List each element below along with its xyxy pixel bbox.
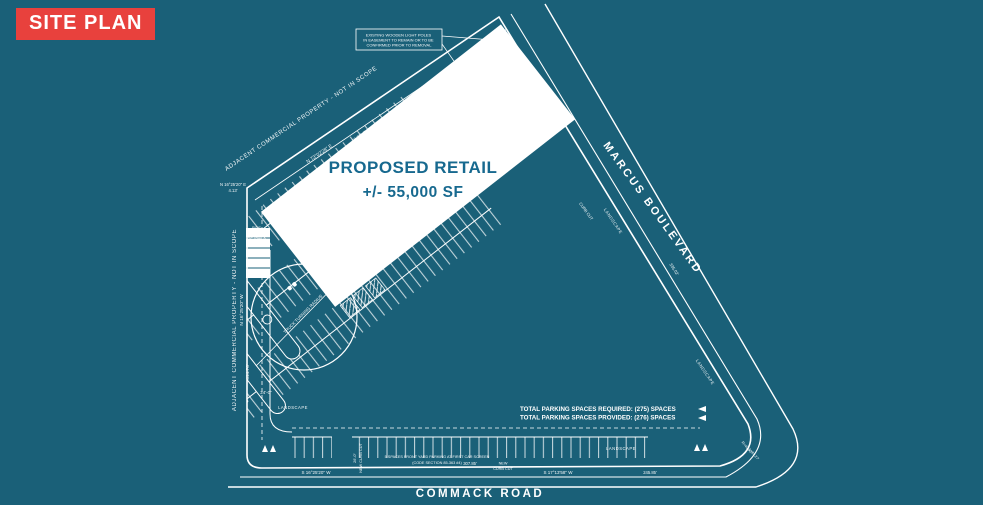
curb-cut-label: CURB CUT — [578, 201, 595, 221]
flow-arrow-icon — [698, 415, 706, 421]
bearing-bottom-east: S 17°13'58" W — [543, 470, 573, 475]
front-yard-note-line2: (CODE SECTION 85-363 #4) — [412, 461, 462, 465]
building-label-line2: +/- 55,000 SF — [363, 184, 464, 201]
flow-arrow-icon — [698, 406, 706, 412]
landscape-label: LANDSCAPE — [695, 358, 716, 386]
curb-cut-width: 26'-0" — [353, 453, 357, 463]
bottom-east-length: 245.85' — [643, 470, 657, 475]
marcus-length: 335.02' — [668, 262, 680, 276]
new-curb-cut-label: NEW — [499, 462, 508, 466]
bearing-jog: N 16°25'20" E — [220, 182, 246, 187]
adjacent-property-label-left: ADJACENT COMMERCIAL PROPERTY - NOT IN SC… — [232, 229, 238, 411]
landscape-label: LANDSCAPE — [603, 207, 624, 235]
light-pole-note: EXISTING WOODEN LIGHT POLES IN EASEMENT … — [363, 33, 434, 48]
left-length: 414.78' — [245, 364, 251, 380]
new-curb-cut-label-vertical: NEW CURB CUT — [359, 443, 363, 473]
crosswalk-hatch — [153, 247, 182, 277]
front-yard-note-line1: 5 SPACES FRONT YARD PARKING AT FIRST CAR… — [385, 455, 490, 459]
parking-required: TOTAL PARKING SPACES REQUIRED: (275) SPA… — [520, 406, 676, 413]
landscape-label: LANDSCAPE — [606, 446, 636, 451]
tree-icon — [262, 445, 276, 452]
setback-dimension: 24'-0" — [260, 390, 272, 395]
commack-road-label: COMMACK ROAD — [416, 488, 544, 500]
corner-arc-length: L=63.27' — [748, 448, 760, 461]
tree-icon — [694, 444, 708, 451]
landscape-label: LANDSCAPE — [278, 405, 308, 410]
site-plan-drawing: PROPOSED RETAIL +/- 55,000 SF MARCUS BOU… — [0, 0, 983, 505]
bearing-bottom-west: S 16°25'20" W — [301, 470, 331, 475]
crosswalk-hatch — [192, 296, 219, 325]
bottom-west-length: 307.85' — [463, 461, 477, 466]
new-curb-cut-label: CURB CUT — [493, 467, 513, 471]
building-label-line1: PROPOSED RETAIL — [329, 158, 498, 177]
parking-provided: TOTAL PARKING SPACES PROVIDED: (276) SPA… — [520, 415, 675, 422]
bearing-left: N 16°25'20" W — [239, 294, 245, 326]
site-plan-canvas: PROPOSED RETAIL +/- 55,000 SF MARCUS BOU… — [0, 0, 983, 505]
site-plan-badge: SITE PLAN — [16, 8, 155, 40]
jog-length: 4.13' — [229, 188, 238, 193]
